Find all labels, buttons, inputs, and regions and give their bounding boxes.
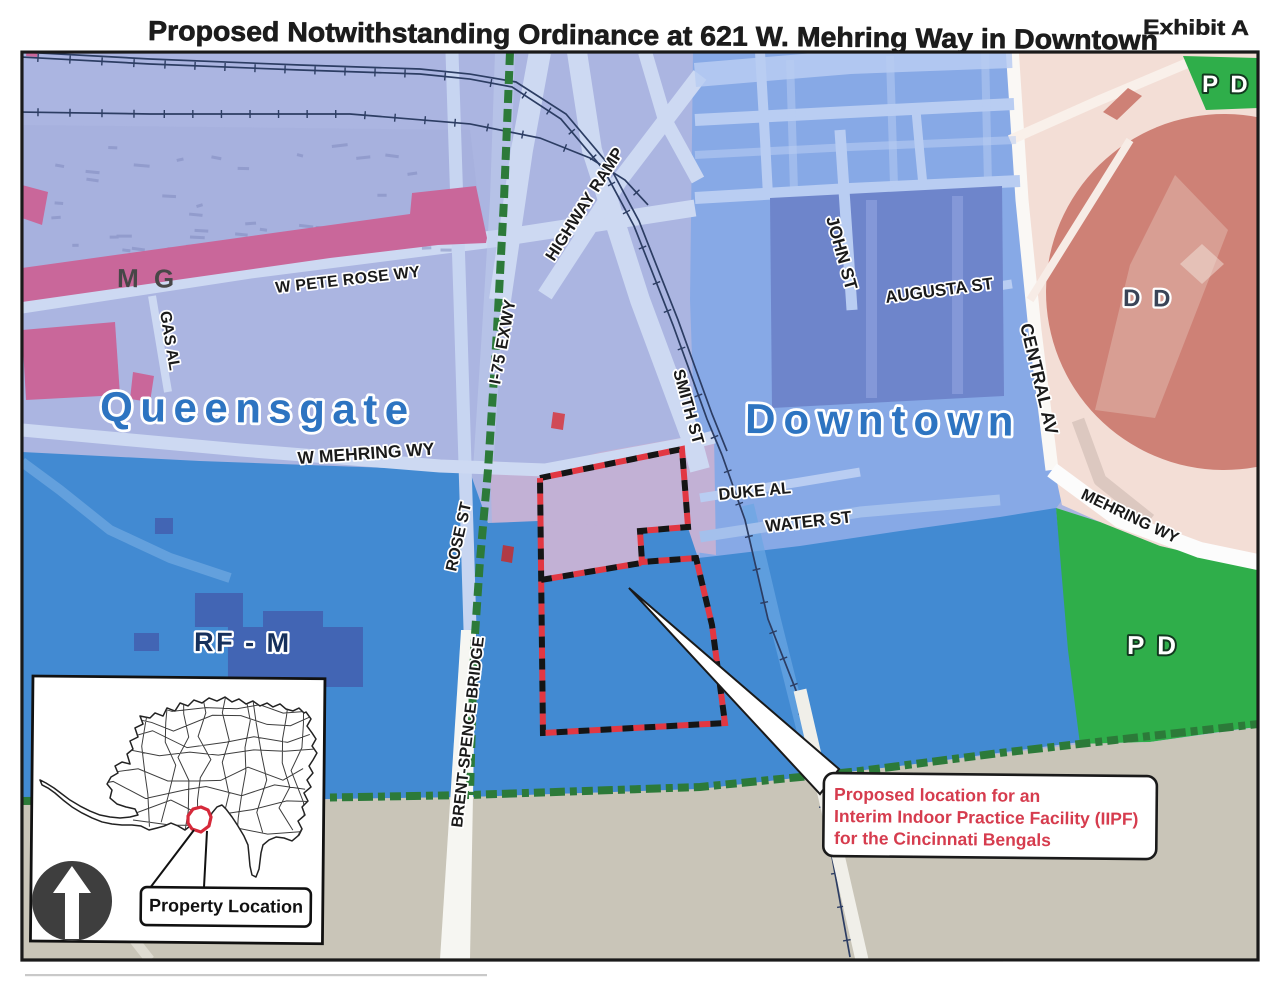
svg-text:D D: D D xyxy=(1123,285,1174,312)
svg-text:P D: P D xyxy=(1202,71,1251,98)
svg-text:Exhibit A: Exhibit A xyxy=(1143,16,1249,40)
svg-text:Proposed location for an: Proposed location for an xyxy=(834,784,1040,806)
svg-text:RF - M: RF - M xyxy=(194,627,292,658)
svg-text:P D: P D xyxy=(1127,630,1179,660)
svg-text:Interim Indoor Practice Facili: Interim Indoor Practice Facility (IIPF) xyxy=(834,806,1139,829)
svg-text:Downtown: Downtown xyxy=(745,395,1022,445)
svg-text:Property Location: Property Location xyxy=(149,895,303,916)
svg-text:M G: M G xyxy=(117,263,178,294)
svg-text:for the Cincinnati Bengals: for the Cincinnati Bengals xyxy=(834,828,1051,850)
svg-text:Queensgate: Queensgate xyxy=(100,383,416,433)
